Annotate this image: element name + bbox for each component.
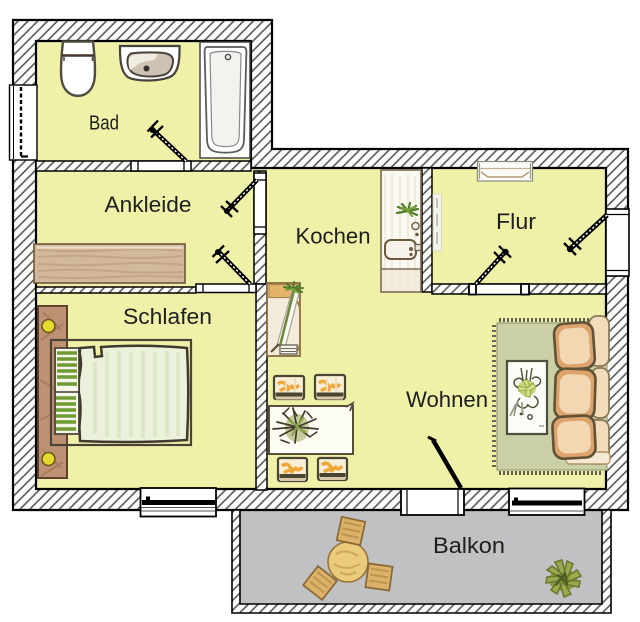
svg-text:Balkon: Balkon xyxy=(433,533,505,558)
svg-text:Bad: Bad xyxy=(89,113,119,135)
svg-text:Wohnen: Wohnen xyxy=(406,387,488,412)
svg-text:Kochen: Kochen xyxy=(296,224,371,249)
svg-text:Ankleide: Ankleide xyxy=(105,192,192,217)
svg-text:Flur: Flur xyxy=(496,209,536,234)
svg-text:Schlafen: Schlafen xyxy=(123,304,212,329)
